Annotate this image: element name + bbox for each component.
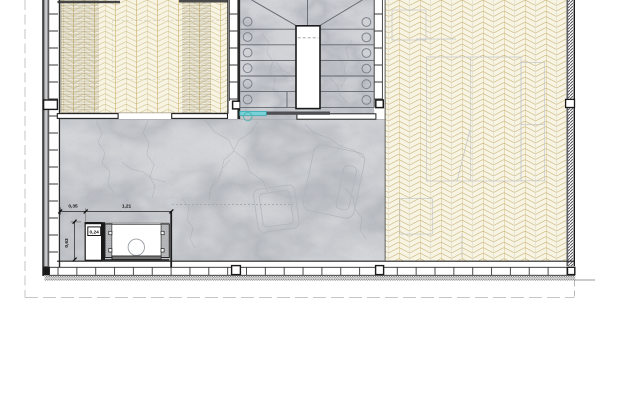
svg-text:0,35: 0,35 <box>68 204 78 210</box>
svg-text:1,21: 1,21 <box>122 204 132 210</box>
svg-text:0,24: 0,24 <box>90 229 100 235</box>
svg-text:0,63: 0,63 <box>64 238 70 248</box>
